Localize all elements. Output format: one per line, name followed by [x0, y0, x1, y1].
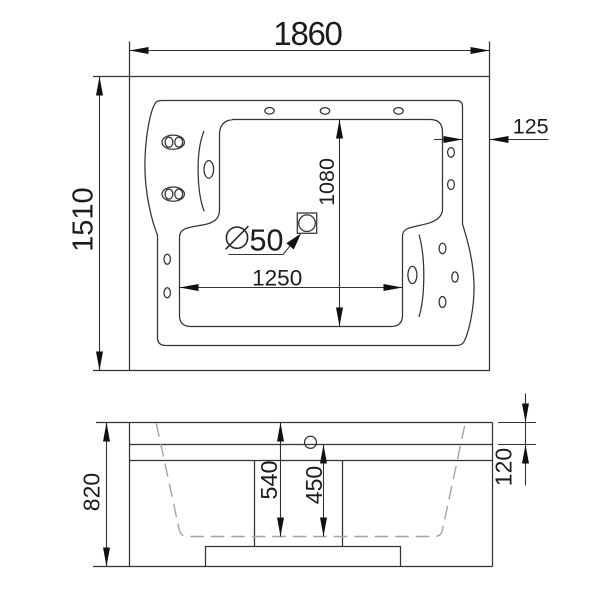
- svg-text:450: 450: [301, 466, 327, 504]
- svg-text:820: 820: [79, 473, 105, 511]
- svg-text:120: 120: [491, 448, 517, 486]
- svg-text:125: 125: [513, 114, 549, 138]
- svg-text:540: 540: [256, 460, 282, 499]
- svg-text:1080: 1080: [315, 158, 339, 206]
- svg-text:1510: 1510: [68, 187, 100, 252]
- svg-text:1250: 1250: [252, 266, 302, 291]
- svg-text:50: 50: [250, 224, 284, 258]
- svg-text:1860: 1860: [273, 15, 342, 52]
